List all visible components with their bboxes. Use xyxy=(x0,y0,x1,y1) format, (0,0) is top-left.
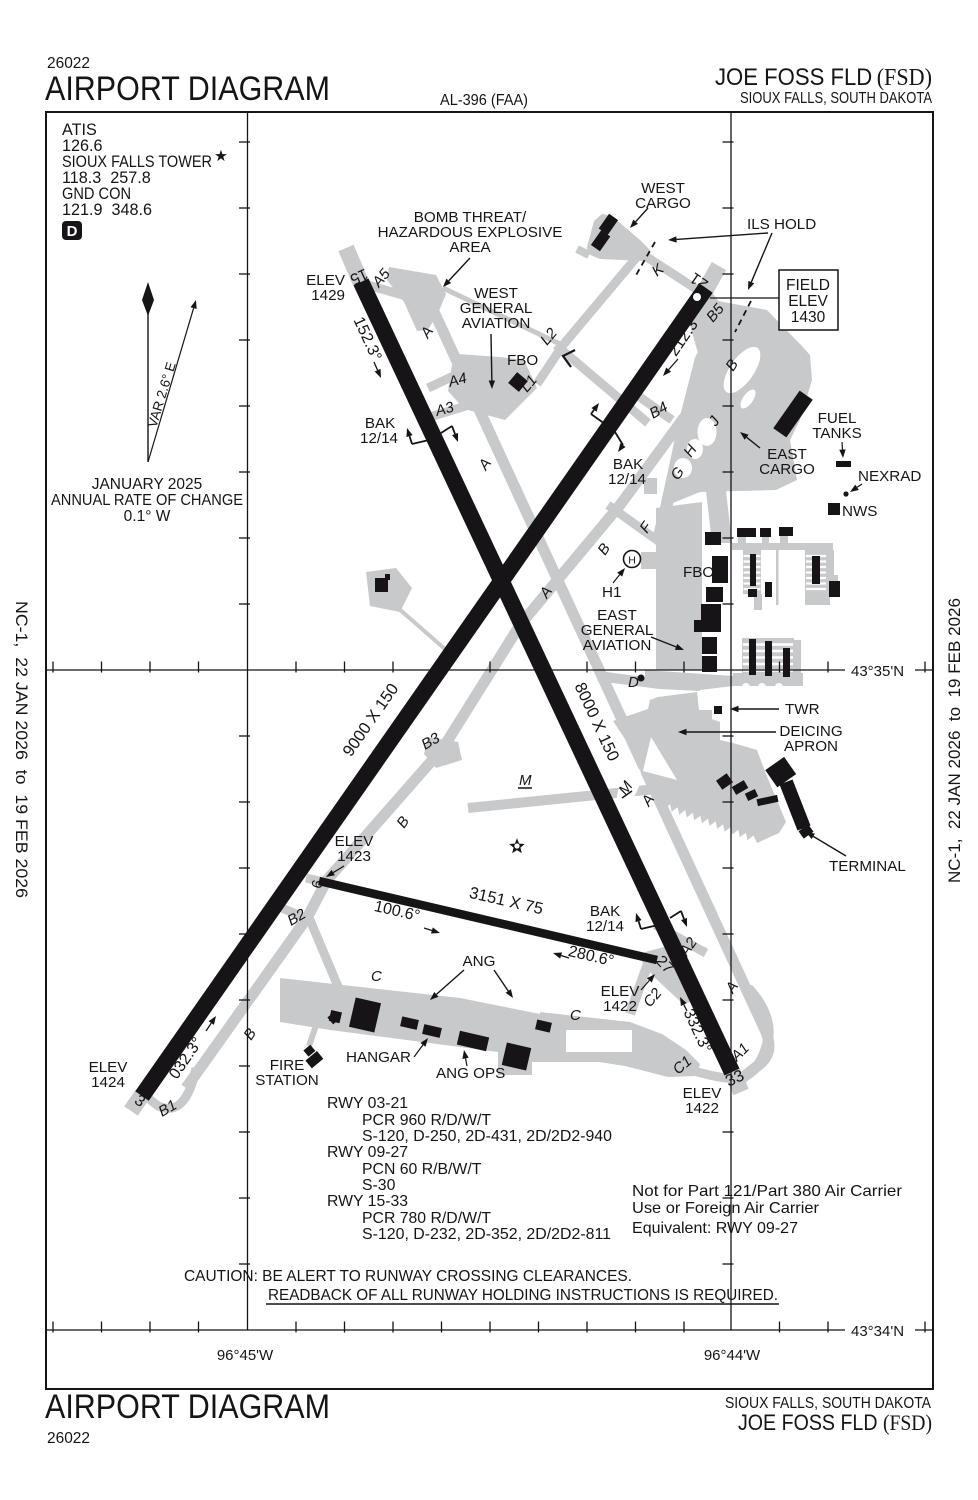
svg-text:READBACK OF ALL RUNWAY HOLDING: READBACK OF ALL RUNWAY HOLDING INSTRUCTI… xyxy=(268,1287,778,1304)
svg-text:S-30: S-30 xyxy=(362,1177,396,1194)
svg-text:JOE FOSS FLD (FSD): JOE FOSS FLD (FSD) xyxy=(738,1410,932,1435)
svg-text:12/14: 12/14 xyxy=(586,918,624,935)
svg-text:ANG: ANG xyxy=(463,953,496,970)
svg-text:43°35'N: 43°35'N xyxy=(851,663,904,680)
svg-text:AIRPORT DIAGRAM: AIRPORT DIAGRAM xyxy=(45,70,330,108)
svg-text:AVIATION: AVIATION xyxy=(462,315,531,332)
svg-text:TERMINAL: TERMINAL xyxy=(829,858,906,875)
svg-text:RWY 03-21: RWY 03-21 xyxy=(327,1095,408,1112)
svg-text:★: ★ xyxy=(214,148,228,165)
svg-text:Use or Foreign Air Carrier: Use or Foreign Air Carrier xyxy=(632,1200,820,1217)
svg-text:JANUARY 2025: JANUARY 2025 xyxy=(92,476,203,493)
svg-text:FBO: FBO xyxy=(683,564,714,581)
svg-text:AL-396 (FAA): AL-396 (FAA) xyxy=(440,92,528,109)
svg-text:1430: 1430 xyxy=(791,309,826,326)
svg-text:TWR: TWR xyxy=(785,701,820,718)
svg-text:ELEV: ELEV xyxy=(788,293,828,310)
svg-text:HANGAR: HANGAR xyxy=(346,1049,411,1066)
svg-text:NC-1, 22 JAN 2026 to 19 FEB: NC-1, 22 JAN 2026 to 19 FEB 2026 xyxy=(945,598,964,883)
svg-text:12/14: 12/14 xyxy=(360,430,398,447)
svg-text:CARGO: CARGO xyxy=(759,461,815,478)
svg-text:RWY 15-33: RWY 15-33 xyxy=(327,1193,408,1210)
svg-text:1424: 1424 xyxy=(91,1074,125,1091)
svg-text:H1: H1 xyxy=(602,584,621,601)
svg-text:0.1° W: 0.1° W xyxy=(124,508,171,525)
svg-text:26022: 26022 xyxy=(47,1430,90,1447)
svg-text:S-120, D-250, 2D-431, 2D/2D2-9: S-120, D-250, 2D-431, 2D/2D2-940 xyxy=(362,1128,612,1145)
svg-text:ILS HOLD: ILS HOLD xyxy=(747,216,816,233)
svg-text:CAUTION: BE ALERT TO RUNWAY CR: CAUTION: BE ALERT TO RUNWAY CROSSING CLE… xyxy=(184,1268,632,1285)
svg-text:PCN 60 R/B/W/T: PCN 60 R/B/W/T xyxy=(362,1161,482,1178)
svg-text:1429: 1429 xyxy=(311,287,345,304)
svg-text:AVIATION: AVIATION xyxy=(583,637,652,654)
svg-text:TANKS: TANKS xyxy=(812,425,862,442)
svg-text:CARGO: CARGO xyxy=(635,195,691,212)
svg-text:Equivalent: RWY 09-27: Equivalent: RWY 09-27 xyxy=(632,1220,798,1237)
svg-text:PCR 780 R/D/W/T: PCR 780 R/D/W/T xyxy=(362,1210,491,1227)
svg-text:PCR 960 R/D/W/T: PCR 960 R/D/W/T xyxy=(362,1112,491,1129)
svg-text:1423: 1423 xyxy=(337,848,371,865)
svg-text:Not for Part 121/Part 380 Air: Not for Part 121/Part 380 Air Carrier xyxy=(632,1183,903,1200)
svg-text:S-120, D-232, 2D-352, 2D/2D2-8: S-120, D-232, 2D-352, 2D/2D2-811 xyxy=(362,1226,611,1243)
svg-text:121.9 348.6: 121.9 348.6 xyxy=(62,201,152,219)
svg-text:STATION: STATION xyxy=(255,1072,319,1089)
svg-text:FIELD: FIELD xyxy=(786,277,830,294)
svg-text:M: M xyxy=(519,772,532,789)
svg-text:C: C xyxy=(371,968,382,985)
svg-text:ANNUAL RATE OF CHANGE: ANNUAL RATE OF CHANGE xyxy=(51,492,243,509)
svg-text:APRON: APRON xyxy=(784,738,838,755)
svg-text:NC-1, 22 JAN 2026 to 19 FEB: NC-1, 22 JAN 2026 to 19 FEB 2026 xyxy=(12,601,31,898)
svg-text:H: H xyxy=(628,555,636,567)
svg-text:43°34'N: 43°34'N xyxy=(851,1323,904,1340)
svg-text:NEXRAD: NEXRAD xyxy=(858,468,921,485)
svg-text:96°44'W: 96°44'W xyxy=(704,1347,761,1364)
svg-text:1422: 1422 xyxy=(685,1100,719,1117)
svg-text:FBO: FBO xyxy=(507,352,538,369)
svg-text:D: D xyxy=(628,674,639,691)
svg-text:D: D xyxy=(67,223,78,240)
svg-text:NWS: NWS xyxy=(842,503,877,520)
svg-text:SIOUX FALLS, SOUTH DAKOTA: SIOUX FALLS, SOUTH DAKOTA xyxy=(740,90,933,107)
svg-text:RWY 09-27: RWY 09-27 xyxy=(327,1144,408,1161)
svg-text:AREA: AREA xyxy=(449,239,491,256)
svg-text:C: C xyxy=(570,1007,581,1024)
svg-text:96°45'W: 96°45'W xyxy=(217,1347,274,1364)
svg-text:12/14: 12/14 xyxy=(608,471,646,488)
svg-text:AIRPORT DIAGRAM: AIRPORT DIAGRAM xyxy=(45,1388,330,1426)
svg-text:1422: 1422 xyxy=(603,998,637,1015)
svg-text:ANG OPS: ANG OPS xyxy=(436,1065,505,1082)
svg-text:JOE FOSS FLD (FSD): JOE FOSS FLD (FSD) xyxy=(715,64,932,91)
